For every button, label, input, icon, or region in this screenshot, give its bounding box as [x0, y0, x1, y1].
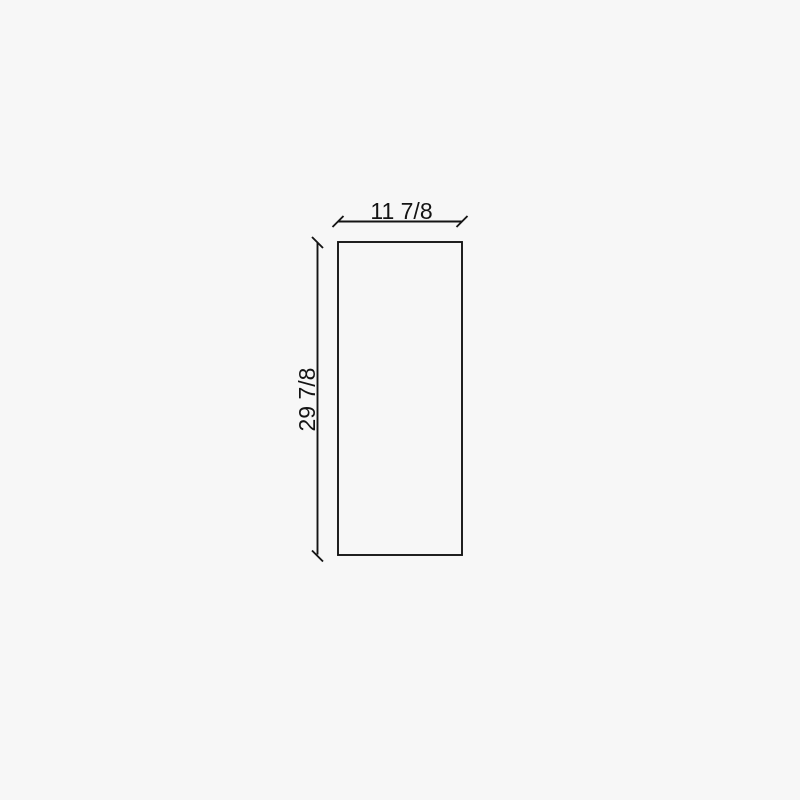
svg-text:29 7/8: 29 7/8 [294, 368, 320, 432]
svg-text:11 7/8: 11 7/8 [370, 198, 432, 224]
